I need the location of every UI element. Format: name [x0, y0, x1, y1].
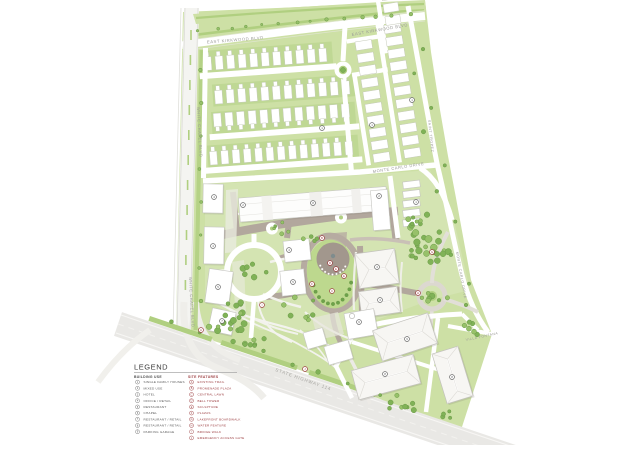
- svg-text:CENTRAL LAWN: CENTRAL LAWN: [198, 393, 225, 397]
- svg-text:SINGLE FAMILY HOUSES: SINGLE FAMILY HOUSES: [144, 380, 185, 384]
- svg-text:PROMENADE PLAZA: PROMENADE PLAZA: [198, 386, 233, 390]
- svg-text:C: C: [191, 393, 193, 396]
- svg-text:OFFICE / RETAIL: OFFICE / RETAIL: [144, 399, 172, 403]
- svg-text:BUILDING USE: BUILDING USE: [134, 375, 162, 379]
- svg-text:LAKEFRONT BOARDWALK: LAKEFRONT BOARDWALK: [198, 417, 242, 421]
- svg-text:SITE FEATURES: SITE FEATURES: [188, 375, 219, 379]
- svg-text:H: H: [191, 424, 193, 427]
- svg-text:MIXED USE: MIXED USE: [144, 386, 163, 390]
- svg-text:G: G: [191, 418, 193, 421]
- svg-text:E: E: [343, 274, 345, 278]
- svg-text:EXISTING TRAIL: EXISTING TRAIL: [198, 380, 225, 384]
- svg-text:EMERGENCY ACCESS GATE: EMERGENCY ACCESS GATE: [198, 436, 245, 440]
- svg-text:D: D: [191, 400, 193, 403]
- svg-text:BELL TOWER: BELL TOWER: [198, 399, 220, 403]
- svg-text:RESTAURANT / RETAIL: RESTAURANT / RETAIL: [144, 424, 182, 428]
- svg-text:SCULPTURE: SCULPTURE: [198, 405, 219, 409]
- svg-text:HOTEL: HOTEL: [144, 393, 155, 397]
- svg-text:CHAPEL: CHAPEL: [144, 411, 158, 415]
- svg-text:B: B: [321, 236, 323, 240]
- svg-text:WATER FEATURE: WATER FEATURE: [198, 424, 227, 428]
- svg-text:D: D: [329, 261, 331, 265]
- svg-text:F: F: [311, 282, 313, 286]
- svg-text:E: E: [335, 267, 337, 271]
- svg-text:RESTAURANT: RESTAURANT: [144, 405, 167, 409]
- svg-text:PLAZAS: PLAZAS: [198, 411, 211, 415]
- svg-text:RESTAURANT / RETAIL: RESTAURANT / RETAIL: [144, 417, 182, 421]
- svg-text:PARKING GARAGE: PARKING GARAGE: [144, 430, 175, 434]
- svg-text:LEGEND: LEGEND: [134, 363, 168, 372]
- svg-text:H: H: [417, 291, 419, 295]
- svg-text:A: A: [200, 328, 202, 332]
- svg-text:C: C: [331, 289, 333, 293]
- svg-text:BRIDGE WALK: BRIDGE WALK: [198, 430, 223, 434]
